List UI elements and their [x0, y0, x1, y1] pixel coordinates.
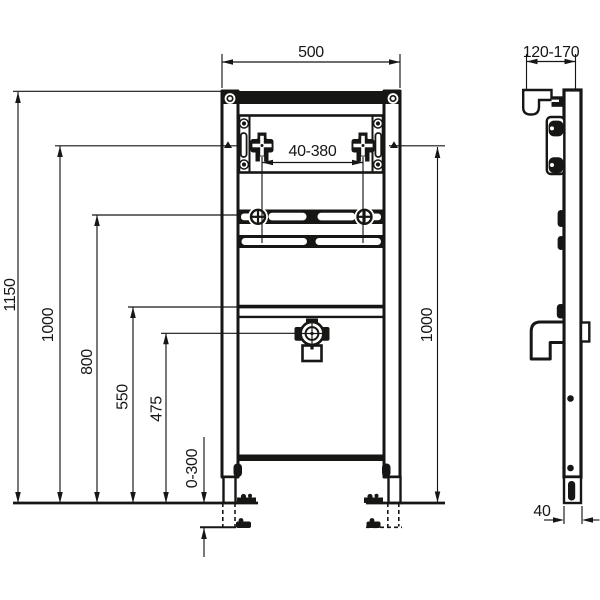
plate-slot-right: [375, 133, 381, 157]
fixing-bolt-left: [248, 207, 268, 227]
foot-clamp-left: [234, 464, 243, 478]
drain-connector: [295, 319, 330, 362]
technical-drawing-page: 500 120-170 40-380 1150 1000 8: [0, 0, 600, 600]
dim-label-bolt-height: 800: [79, 349, 96, 375]
dim-wall-distance: 120-170: [523, 44, 580, 89]
dim-frame-width: 500: [222, 44, 400, 88]
adjustable-foot-left: [224, 477, 236, 503]
right-upright: [384, 91, 400, 477]
foot-extension-dashed-left: [200, 503, 251, 528]
rail-slot: [318, 213, 356, 221]
plate-slot-left: [241, 133, 247, 157]
rail-tab-lower: [557, 304, 565, 319]
bolt-rail: [238, 207, 384, 227]
dim-label-rail-height: 550: [115, 384, 132, 410]
dim-foot-adjust-range: 0-300: [184, 437, 207, 557]
front-view: [13, 91, 445, 528]
side-view: [523, 90, 589, 503]
fixing-bolt-right: [355, 207, 375, 227]
rail-screw-lower: [567, 465, 574, 472]
drain-elbow: [531, 322, 564, 359]
dim-label-tap-fixing-range: 40-380: [288, 143, 336, 160]
foot-clamp-right: [382, 464, 391, 478]
adjustable-foot-right: [389, 477, 401, 503]
dim-bolt-height: 800: [79, 215, 238, 503]
foot-extension-dashed-right: [366, 503, 402, 528]
dim-label-total-height: 1150: [2, 278, 19, 312]
top-screw-hole: [225, 93, 236, 104]
left-upright: [222, 91, 238, 477]
dim-label-wall-distance: 120-170: [523, 44, 580, 61]
dim-rail-height: 550: [115, 307, 238, 503]
dim-total-height: 1150: [2, 91, 224, 503]
rail-tab-upper: [558, 210, 565, 227]
rail-foot-insert: [568, 481, 575, 501]
dim-label-drain-height: 475: [149, 396, 166, 422]
supply-connector-lower: [549, 157, 564, 173]
rear-outlet-tab: [581, 323, 589, 342]
support-rail: [238, 307, 384, 317]
rail-screw-upper: [567, 395, 574, 402]
rail-slot: [242, 238, 308, 245]
dim-label-right-height: 1000: [419, 307, 436, 342]
dim-label-frame-width: 500: [298, 44, 324, 61]
dim-label-profile-depth: 40: [533, 503, 551, 520]
top-screw-hole: [388, 93, 399, 104]
rail-tab-middle: [558, 236, 565, 250]
wall-bracket: [523, 90, 551, 115]
dim-label-foot-adjust-range: 0-300: [184, 448, 201, 488]
bottom-crossbar: [238, 455, 384, 462]
dim-left-height: 1000: [40, 141, 240, 503]
top-crossbar: [222, 91, 400, 104]
installation-frame-drawing: 500 120-170 40-380 1150 1000 8: [0, 0, 600, 600]
dim-profile-depth: 40: [533, 503, 599, 524]
vertical-rail: [564, 90, 581, 477]
slot-rail: [238, 235, 384, 248]
dim-label-left-height: 1000: [40, 307, 57, 342]
rail-slot: [269, 213, 307, 221]
supply-connector-upper: [549, 121, 564, 137]
rail-slot: [316, 238, 382, 245]
bracket-connector-slit: [552, 100, 560, 102]
